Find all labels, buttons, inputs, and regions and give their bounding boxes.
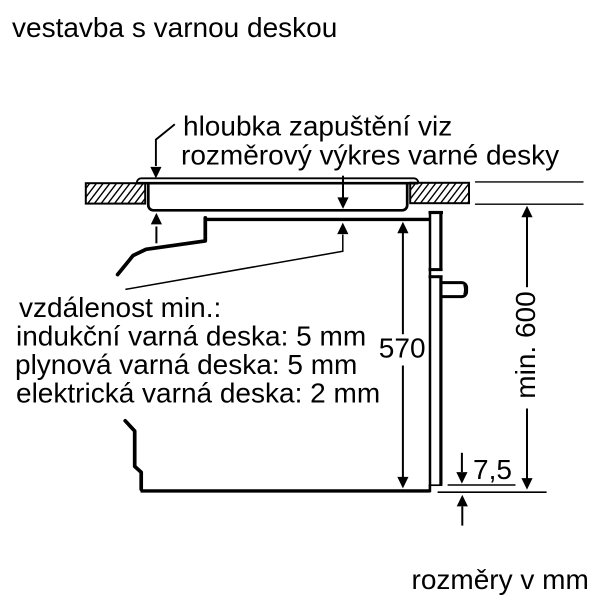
svg-text:7,5: 7,5 (473, 454, 512, 485)
svg-text:vestavba s varnou deskou: vestavba s varnou deskou (12, 12, 337, 43)
svg-text:hloubka zapuštění viz: hloubka zapuštění viz (183, 111, 452, 142)
svg-text:indukční varná deska: 5 mm: indukční varná deska: 5 mm (16, 320, 366, 351)
svg-text:plynová varná deska: 5 mm: plynová varná deska: 5 mm (15, 349, 357, 380)
svg-text:rozměry v mm: rozměry v mm (412, 564, 589, 595)
svg-text:570: 570 (379, 333, 426, 364)
svg-text:vzdálenost min.:: vzdálenost min.: (19, 292, 221, 323)
svg-text:elektrická varná deska: 2 mm: elektrická varná deska: 2 mm (16, 378, 380, 409)
svg-text:rozměrový výkres varné desky: rozměrový výkres varné desky (181, 139, 559, 170)
svg-text:min. 600: min. 600 (510, 291, 541, 398)
